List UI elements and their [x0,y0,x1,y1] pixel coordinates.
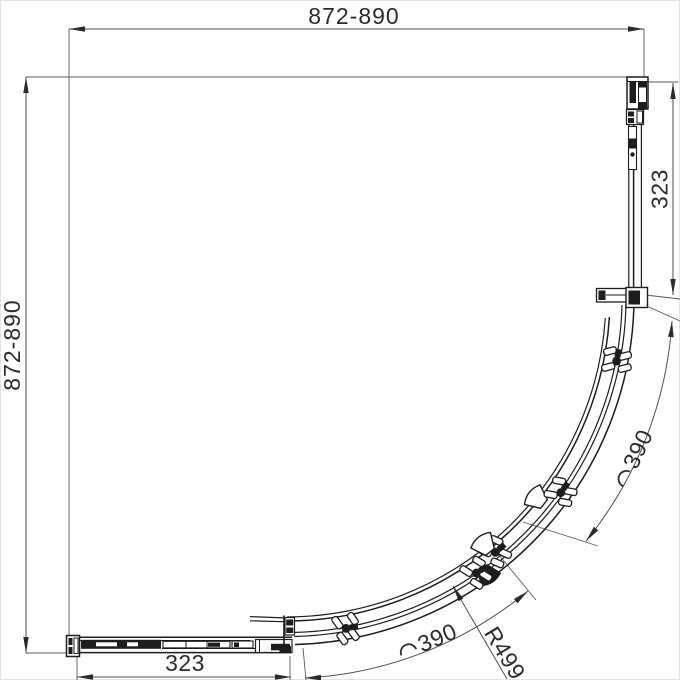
dim-label-right: 323 [647,169,673,209]
dimension-right-323: 323 [647,83,676,295]
arrowhead [23,637,28,653]
dimension-bottom-323: 323 [77,650,291,680]
arrowhead [628,26,644,31]
arrowhead [77,674,93,679]
arrowhead [668,321,674,337]
dimension-left: 872-890 [0,77,29,653]
arrowhead [670,279,675,295]
fixed-panel-right [627,109,644,290]
arrowhead [670,83,675,99]
arrowhead [514,591,528,603]
dim-label-arc-lower: 390 [414,618,461,658]
arrowhead [23,77,28,93]
curve-connector-top [597,288,648,308]
arrowhead [275,674,291,679]
dim-label-arc-upper: 390 [618,425,658,472]
roller-upper-door [541,472,583,513]
dim-label-top: 872-890 [308,3,399,29]
arrowhead [69,26,85,31]
dim-label-left: 872-890 [0,299,25,390]
wall-profile-bottom-left [67,636,80,657]
dimension-top: 872-890 [69,3,644,32]
dim-label-bottom: 323 [165,650,205,676]
technical-drawing-canvas: 872-890 872-890 323 323 390 [0,0,680,680]
wall-profile-top-right [627,77,648,109]
quadrant-enclosure-plan-drawing: 872-890 872-890 323 323 390 [0,0,680,680]
arrowhead [586,527,598,541]
extension-lines [26,29,680,680]
dim-label-radius: R499 [479,622,531,680]
image-border [1,1,680,680]
door-glass-arcs [287,317,609,621]
curved-track-arcs [293,300,634,645]
arc-length-symbol [398,642,416,656]
